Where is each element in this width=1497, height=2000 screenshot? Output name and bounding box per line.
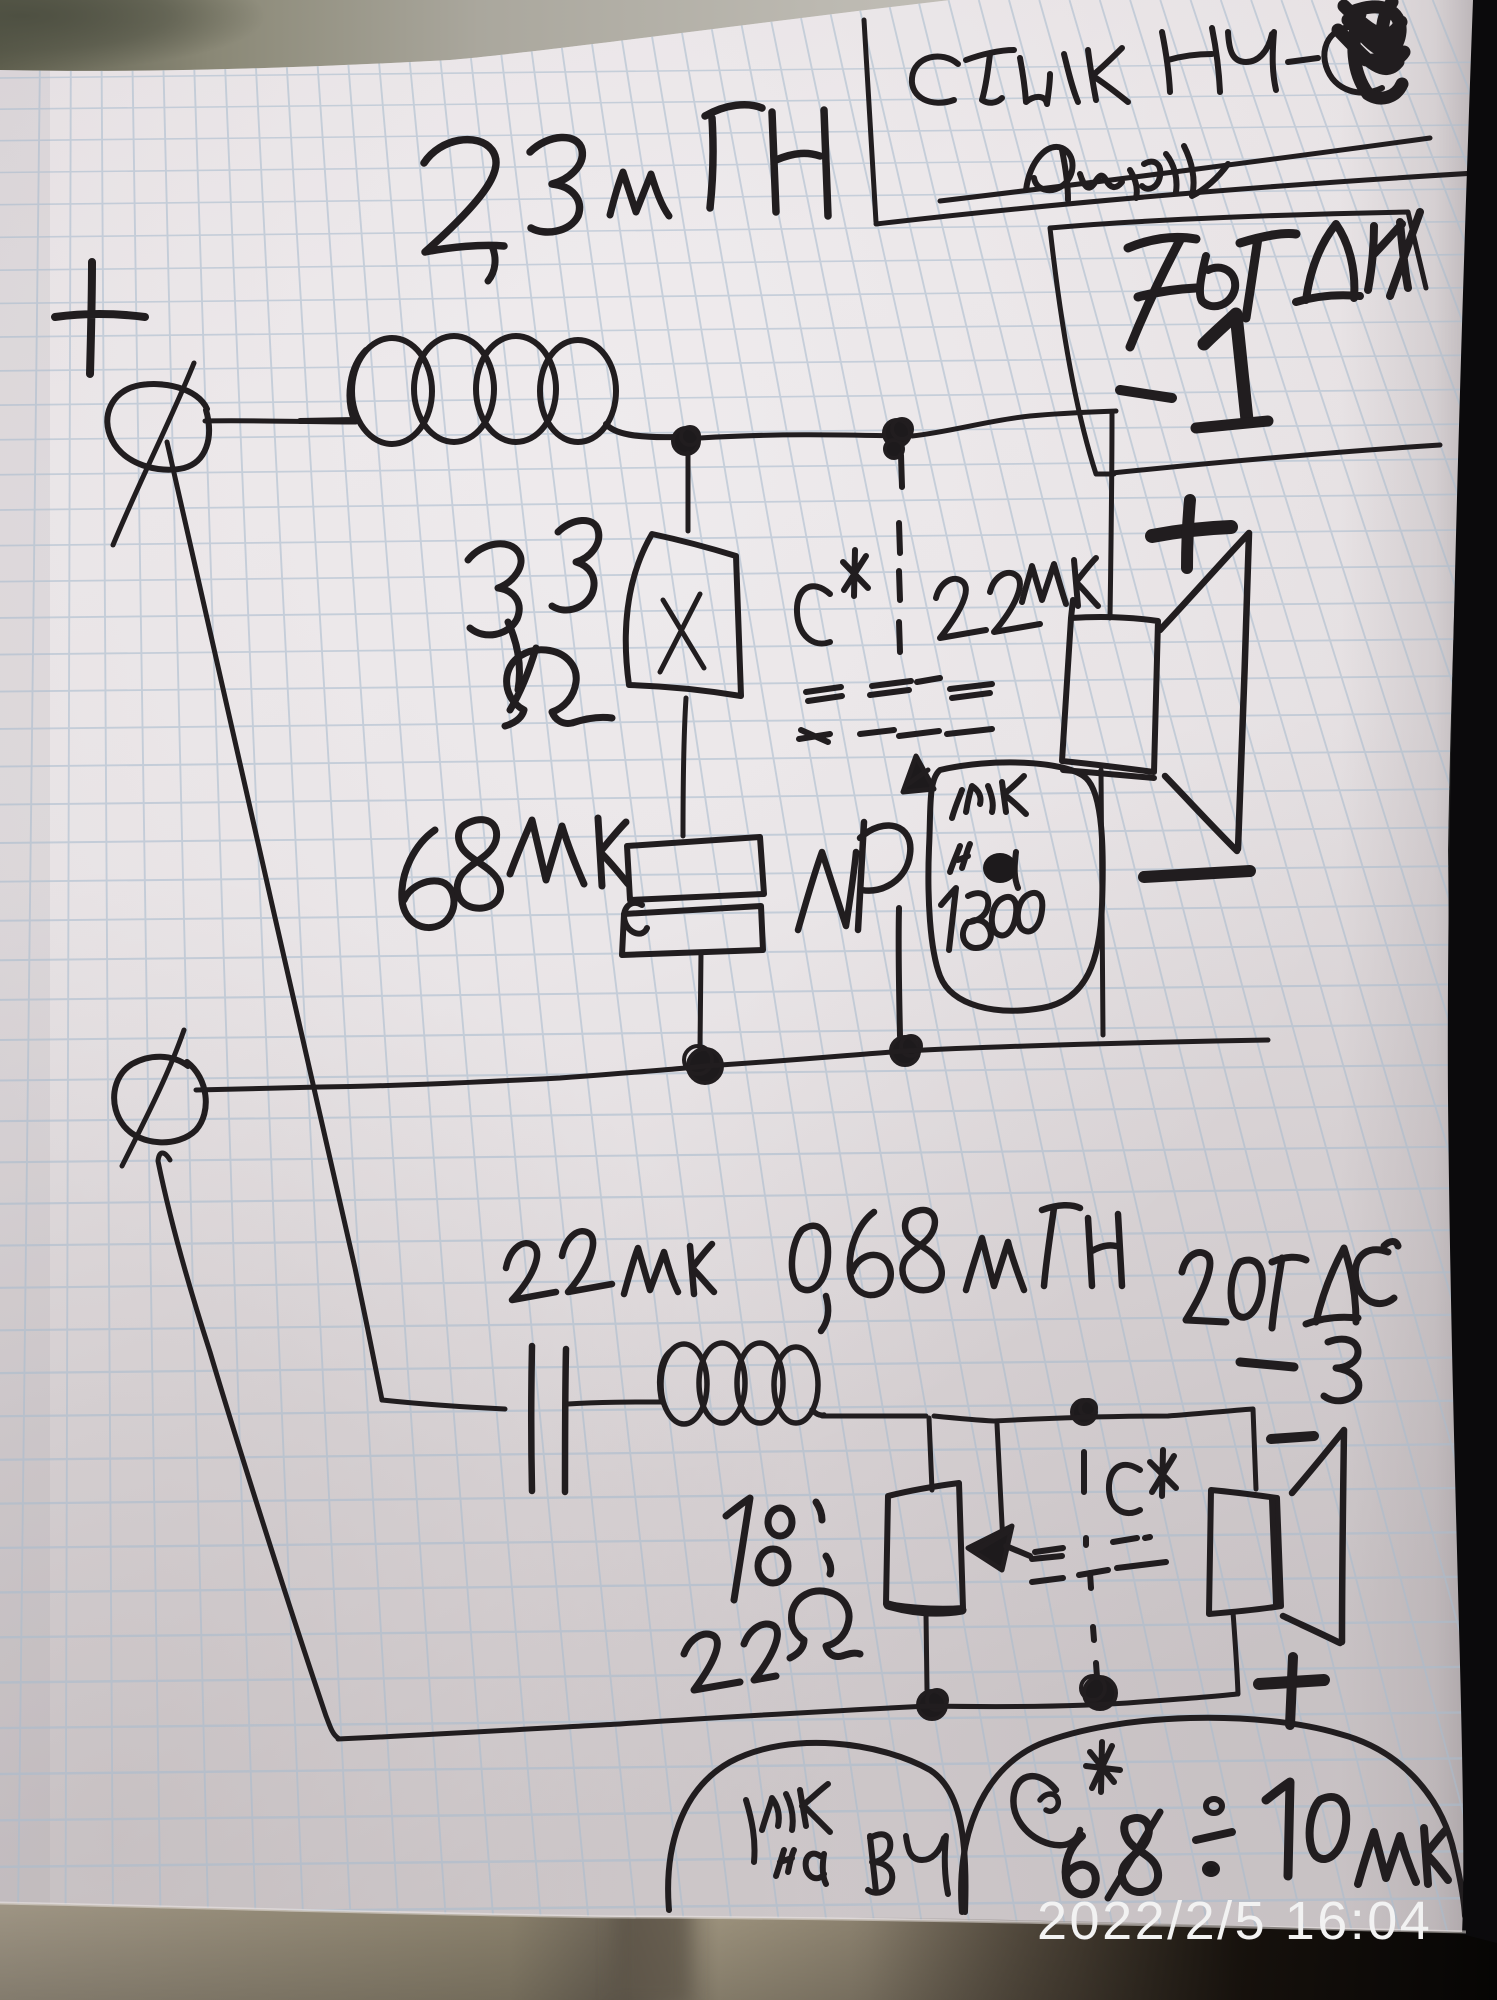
- svg-text:2022/2/5 16:04: 2022/2/5 16:04: [1037, 1891, 1432, 1951]
